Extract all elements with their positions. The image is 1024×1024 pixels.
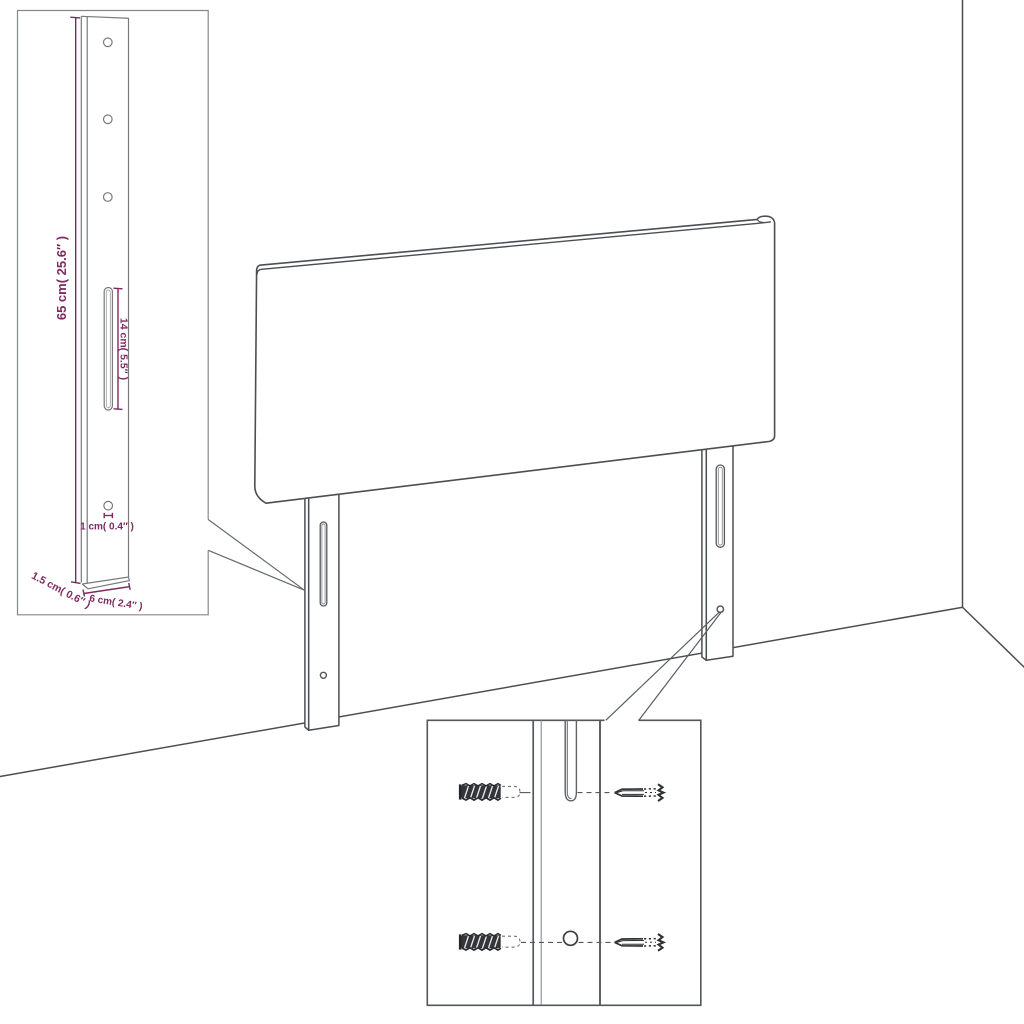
svg-text:1 cm( 0.4″ ): 1 cm( 0.4″ ) xyxy=(80,522,134,533)
svg-text:65 cm( 25.6″ ): 65 cm( 25.6″ ) xyxy=(54,236,69,320)
svg-text:14 cm( 5.5″ ): 14 cm( 5.5″ ) xyxy=(118,318,130,380)
svg-text:6 cm( 2.4″ ): 6 cm( 2.4″ ) xyxy=(89,593,144,612)
